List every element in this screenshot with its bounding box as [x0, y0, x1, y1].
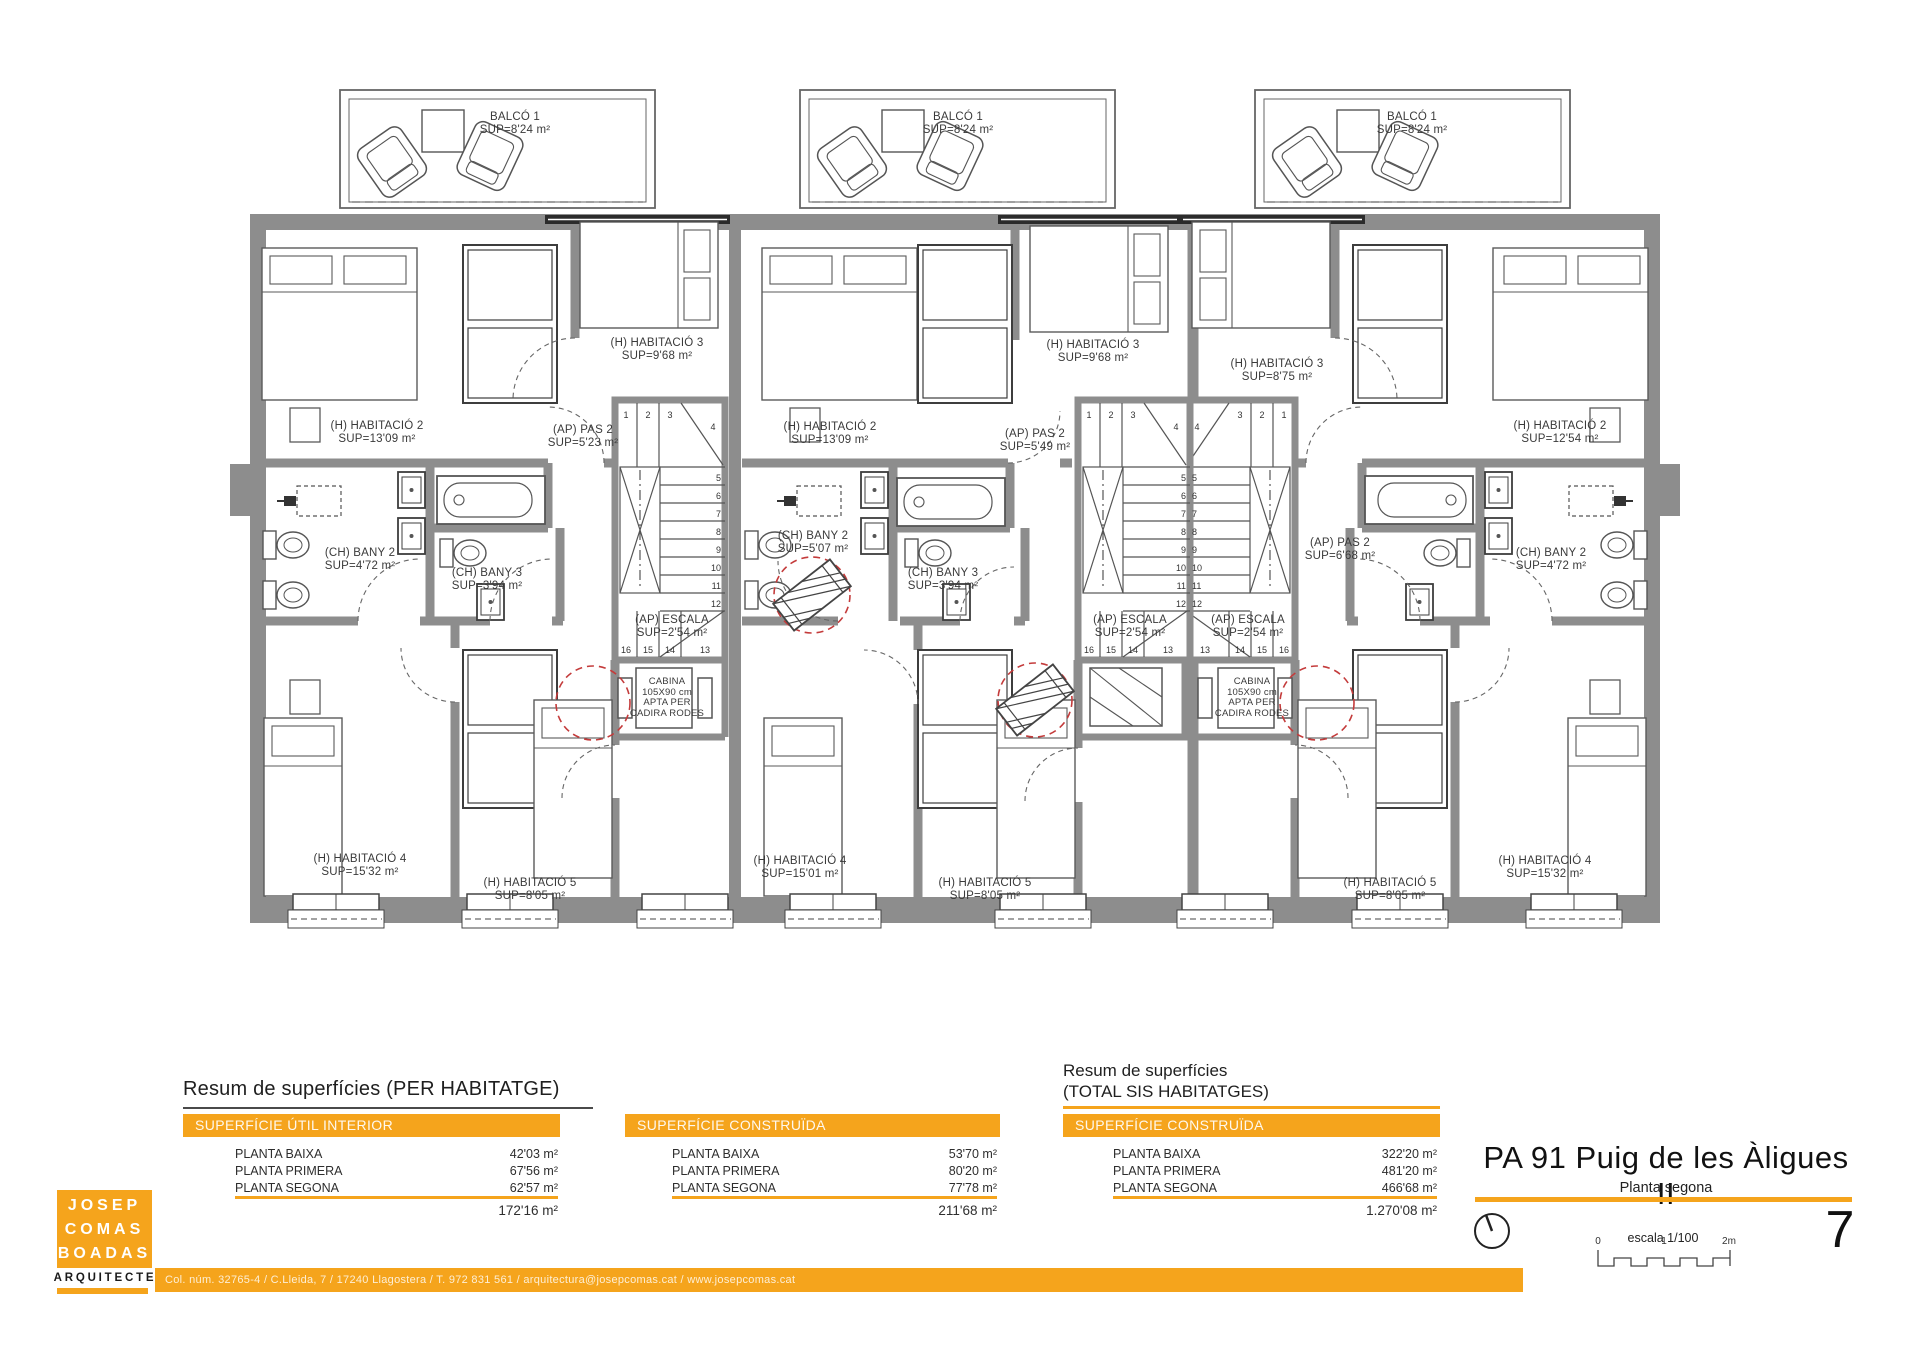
svg-text:2: 2 — [1108, 410, 1113, 420]
logo-rule — [57, 1288, 148, 1294]
row-value: 53'70 m² — [949, 1146, 997, 1163]
svg-text:6: 6 — [1192, 491, 1197, 501]
summary-total-title: Resum de superfícies (TOTAL SIS HABITATG… — [1063, 1060, 1269, 1102]
row-label: PLANTA PRIMERA — [235, 1163, 342, 1180]
table-row: PLANTA SEGONA62'57 m² — [235, 1180, 558, 1197]
total-rule — [235, 1196, 558, 1199]
svg-text:2: 2 — [645, 410, 650, 420]
svg-text:8: 8 — [1181, 527, 1186, 537]
summary-per-habitatge-title: Resum de superfícies (PER HABITATGE) — [183, 1078, 560, 1101]
table-row: PLANTA BAIXA42'03 m² — [235, 1146, 558, 1163]
svg-text:13: 13 — [1163, 645, 1173, 655]
room-label-pas2: (AP) PAS 2 SUP=5'49 m² — [1000, 428, 1071, 454]
svg-text:1: 1 — [1281, 410, 1286, 420]
table-header-util-interior: SUPERFÍCIE ÚTIL INTERIOR — [183, 1114, 560, 1137]
svg-text:5: 5 — [1192, 473, 1197, 483]
logo-line: BOADAS — [57, 1242, 152, 1266]
room-label-hab4: (H) HABITACIÓ 4 SUP=15'32 m² — [1499, 855, 1592, 881]
cabina-label: CABINA 105X90 cm APTA PER CADIRA RODES — [1215, 677, 1289, 719]
svg-text:5: 5 — [1181, 473, 1186, 483]
svg-text:9: 9 — [1181, 545, 1186, 555]
svg-text:9: 9 — [716, 545, 721, 555]
unit-2-interior — [742, 226, 1190, 905]
total-rule — [672, 1196, 997, 1199]
logo-line: JOSEP — [57, 1194, 152, 1218]
svg-text:16: 16 — [1279, 645, 1289, 655]
table-total-construida: PLANTA BAIXA322'20 m² PLANTA PRIMERA481'… — [1113, 1146, 1437, 1197]
balcony-3 — [1255, 90, 1570, 208]
table-header-construida: SUPERFÍCIE CONSTRUÏDA — [625, 1114, 1000, 1137]
room-label-hab4: (H) HABITACIÓ 4 SUP=15'32 m² — [314, 853, 407, 879]
table-row: PLANTA PRIMERA80'20 m² — [672, 1163, 997, 1180]
room-label-hab2: (H) HABITACIÓ 2 SUP=13'09 m² — [331, 420, 424, 446]
room-label-hab2: (H) HABITACIÓ 2 SUP=13'09 m² — [784, 421, 877, 447]
svg-text:12: 12 — [711, 599, 721, 609]
row-label: PLANTA SEGONA — [235, 1180, 339, 1197]
svg-text:16: 16 — [1084, 645, 1094, 655]
svg-text:4: 4 — [1173, 422, 1178, 432]
balcony-label: BALCÓ 1 SUP=8'24 m² — [923, 111, 994, 137]
svg-text:4: 4 — [1194, 422, 1199, 432]
svg-text:1: 1 — [623, 410, 628, 420]
room-label-hab3: (H) HABITACIÓ 3 SUP=8'75 m² — [1231, 358, 1324, 384]
summary-total-title-line2: (TOTAL SIS HABITATGES) — [1063, 1081, 1269, 1102]
footer-bar: Col. núm. 32765-4 / C.Lleida, 7 / 17240 … — [155, 1268, 1523, 1292]
svg-text:14: 14 — [665, 645, 675, 655]
balcony-label: BALCÓ 1 SUP=8'24 m² — [480, 111, 551, 137]
room-label-bany2: (CH) BANY 2 SUP=4'72 m² — [325, 547, 396, 573]
svg-text:15: 15 — [1106, 645, 1116, 655]
svg-text:11: 11 — [1192, 581, 1201, 591]
svg-text:15: 15 — [1257, 645, 1267, 655]
table-row: PLANTA PRIMERA481'20 m² — [1113, 1163, 1437, 1180]
room-label-bany3: (CH) BANY 3 SUP=3'94 m² — [908, 567, 979, 593]
room-label-hab3: (H) HABITACIÓ 3 SUP=9'68 m² — [611, 337, 704, 363]
room-label-escala: (AP) ESCALA SUP=2'54 m² — [1093, 614, 1167, 640]
cabina-label: CABINA 105X90 cm APTA PER CADIRA RODES — [630, 677, 704, 719]
svg-text:6: 6 — [1181, 491, 1186, 501]
summary-total-title-line1: Resum de superfícies — [1063, 1060, 1269, 1081]
sheet-subtitle: Planta segona — [1478, 1180, 1854, 1196]
room-label-bany2: (CH) BANY 2 SUP=4'72 m² — [1516, 547, 1587, 573]
svg-text:10: 10 — [1176, 563, 1186, 573]
svg-text:7: 7 — [1192, 509, 1197, 519]
svg-text:8: 8 — [716, 527, 721, 537]
north-arrow-icon — [1475, 1214, 1509, 1248]
svg-text:4: 4 — [710, 422, 715, 432]
svg-text:11: 11 — [712, 581, 721, 591]
svg-text:7: 7 — [1181, 509, 1186, 519]
table-construida: PLANTA BAIXA53'70 m² PLANTA PRIMERA80'20… — [672, 1146, 997, 1197]
svg-text:16: 16 — [621, 645, 631, 655]
svg-text:15: 15 — [643, 645, 653, 655]
table-row: PLANTA SEGONA77'78 m² — [672, 1180, 997, 1197]
svg-text:11: 11 — [1177, 581, 1186, 591]
row-value: 62'57 m² — [510, 1180, 558, 1197]
row-value: 481'20 m² — [1382, 1163, 1437, 1180]
svg-text:3: 3 — [667, 410, 672, 420]
title-rule — [183, 1107, 593, 1109]
wall-notch-right — [1652, 464, 1680, 516]
row-label: PLANTA BAIXA — [235, 1146, 322, 1163]
room-label-hab3: (H) HABITACIÓ 3 SUP=9'68 m² — [1047, 339, 1140, 365]
room-label-hab5: (H) HABITACIÓ 5 SUP=8'05 m² — [939, 877, 1032, 903]
room-label-hab2: (H) HABITACIÓ 2 SUP=12'54 m² — [1514, 420, 1607, 446]
svg-text:7: 7 — [716, 509, 721, 519]
svg-text:9: 9 — [1192, 545, 1197, 555]
room-label-bany2: (CH) BANY 2 SUP=5'07 m² — [778, 530, 849, 556]
scale-bar — [1598, 1250, 1730, 1266]
page-number: 7 — [1800, 1200, 1880, 1260]
table-row: PLANTA BAIXA53'70 m² — [672, 1146, 997, 1163]
svg-text:2: 2 — [1259, 410, 1264, 420]
row-label: PLANTA PRIMERA — [672, 1163, 779, 1180]
room-label-hab5: (H) HABITACIÓ 5 SUP=8'05 m² — [484, 877, 577, 903]
row-value: 80'20 m² — [949, 1163, 997, 1180]
svg-text:10: 10 — [1192, 563, 1202, 573]
row-label: PLANTA BAIXA — [672, 1146, 759, 1163]
svg-text:6: 6 — [716, 491, 721, 501]
row-label: PLANTA BAIXA — [1113, 1146, 1200, 1163]
room-label-escala: (AP) ESCALA SUP=2'54 m² — [1211, 614, 1285, 640]
row-value: 466'68 m² — [1382, 1180, 1437, 1197]
balcony-2 — [800, 90, 1115, 208]
svg-text:12: 12 — [1176, 599, 1186, 609]
room-label-escala: (AP) ESCALA SUP=2'54 m² — [635, 614, 709, 640]
row-label: PLANTA PRIMERA — [1113, 1163, 1220, 1180]
row-label: PLANTA SEGONA — [672, 1180, 776, 1197]
row-value: 67'56 m² — [510, 1163, 558, 1180]
table-total: 172'16 m² — [358, 1203, 558, 1218]
footer-credits: Col. núm. 32765-4 / C.Lleida, 7 / 17240 … — [155, 1268, 1523, 1292]
svg-text:1: 1 — [1086, 410, 1091, 420]
svg-text:14: 14 — [1128, 645, 1138, 655]
row-value: 322'20 m² — [1382, 1146, 1437, 1163]
logo-role: ARQUITECTE — [50, 1272, 160, 1284]
balcony-1 — [340, 90, 655, 208]
table-header-total-construida: SUPERFÍCIE CONSTRUÏDA — [1063, 1114, 1440, 1137]
svg-text:12: 12 — [1192, 599, 1202, 609]
room-label-pas2: (AP) PAS 2 SUP=6'68 m² — [1305, 537, 1376, 563]
balcony-label: BALCÓ 1 SUP=8'24 m² — [1377, 111, 1448, 137]
sheet: 1 2 3 4 5 6 7 8 9 10 11 12 13 14 15 16 1… — [0, 0, 1920, 1356]
table-total: 1.270'08 m² — [1237, 1203, 1437, 1218]
svg-text:13: 13 — [1200, 645, 1210, 655]
total-rule — [1113, 1196, 1437, 1199]
table-util-interior: PLANTA BAIXA42'03 m² PLANTA PRIMERA67'56… — [235, 1146, 558, 1197]
wall-notch-left — [230, 464, 258, 516]
svg-text:8: 8 — [1192, 527, 1197, 537]
scale-tick-1: 1 — [1661, 1236, 1667, 1247]
row-value: 77'78 m² — [949, 1180, 997, 1197]
svg-text:3: 3 — [1130, 410, 1135, 420]
table-row: PLANTA SEGONA466'68 m² — [1113, 1180, 1437, 1197]
room-label-hab4: (H) HABITACIÓ 4 SUP=15'01 m² — [754, 855, 847, 881]
svg-text:14: 14 — [1235, 645, 1245, 655]
scale-tick-0: 0 — [1595, 1236, 1601, 1247]
room-label-pas2: (AP) PAS 2 SUP=5'23 m² — [548, 424, 619, 450]
svg-text:3: 3 — [1237, 410, 1242, 420]
room-label-bany3: (CH) BANY 3 SUP=3'94 m² — [452, 567, 523, 593]
svg-text:10: 10 — [711, 563, 721, 573]
svg-text:5: 5 — [716, 473, 721, 483]
titleblock-rule — [1475, 1197, 1852, 1202]
table-row: PLANTA BAIXA322'20 m² — [1113, 1146, 1437, 1163]
architect-logo: JOSEP COMAS BOADAS — [57, 1190, 152, 1268]
row-label: PLANTA SEGONA — [1113, 1180, 1217, 1197]
table-total: 211'68 m² — [797, 1203, 997, 1218]
room-label-hab5: (H) HABITACIÓ 5 SUP=8'05 m² — [1344, 877, 1437, 903]
svg-text:13: 13 — [700, 645, 710, 655]
scale-tick-2: 2m — [1722, 1236, 1736, 1247]
title-rule-orange — [1063, 1106, 1440, 1109]
table-row: PLANTA PRIMERA67'56 m² — [235, 1163, 558, 1180]
logo-line: COMAS — [57, 1218, 152, 1242]
row-value: 42'03 m² — [510, 1146, 558, 1163]
